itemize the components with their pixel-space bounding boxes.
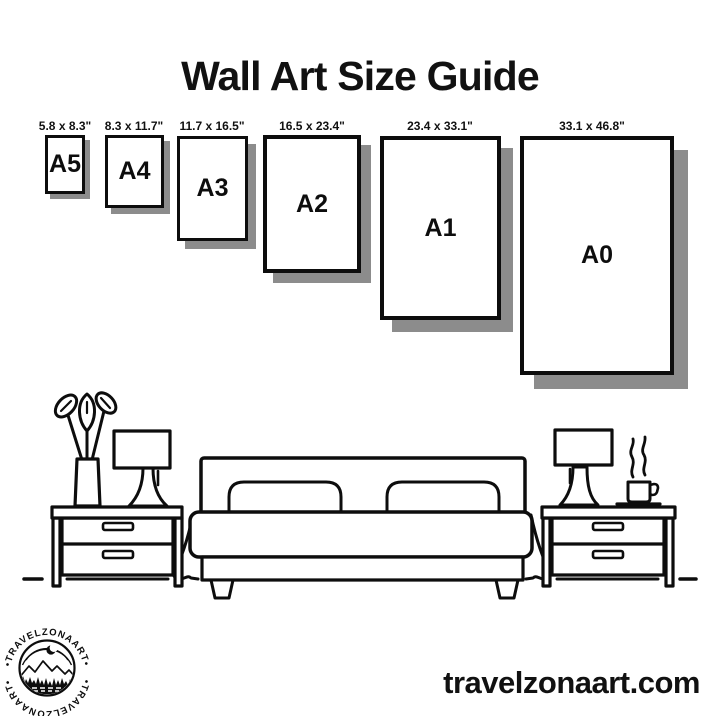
- bedroom-illustration-icon: [0, 360, 720, 605]
- lamp-shade: [114, 431, 170, 468]
- frame-a2: A2: [263, 135, 361, 273]
- frame-a0-letter: A0: [581, 241, 613, 270]
- brand-logo: •TRAVELZONAART• •TRAVELZONAART•: [2, 616, 94, 716]
- flower-vase-icon: [51, 389, 119, 506]
- steam: [631, 439, 634, 477]
- pillow-right: [387, 482, 499, 514]
- table-lamp-left-icon: [114, 431, 170, 506]
- frame-a5: A5: [45, 135, 85, 194]
- frame-a0: A0: [520, 136, 674, 375]
- lamp-shade: [555, 430, 612, 465]
- frame-a4-letter: A4: [119, 157, 151, 186]
- size-label-a4: 8.3 x 11.7": [105, 119, 163, 133]
- size-label-a2: 16.5 x 23.4": [279, 119, 345, 133]
- frame-a3-letter: A3: [197, 174, 229, 203]
- frame-a2-letter: A2: [296, 190, 328, 219]
- size-label-a3: 11.7 x 16.5": [179, 119, 244, 133]
- pillow-left: [229, 482, 341, 514]
- frame-a1: A1: [380, 136, 501, 320]
- coffee-cup-icon: [617, 437, 660, 504]
- page-title: Wall Art Size Guide: [0, 53, 720, 100]
- size-label-a1: 23.4 x 33.1": [407, 119, 473, 133]
- table-lamp-right-icon: [555, 430, 612, 505]
- frame-a3: A3: [177, 136, 248, 241]
- size-label-a5: 5.8 x 8.3": [39, 119, 91, 133]
- frame-a1-letter: A1: [425, 214, 457, 243]
- frame-a4: A4: [105, 135, 164, 208]
- nightstand-left-icon: [52, 507, 182, 586]
- size-label-a0: 33.1 x 46.8": [559, 119, 625, 133]
- wall-art-size-guide-poster: Wall Art Size Guide 5.8 x 8.3" 8.3 x 11.…: [0, 0, 720, 720]
- bed-icon: [173, 458, 550, 598]
- website-url: travelzonaart.com: [443, 665, 700, 701]
- bed-base: [202, 557, 523, 580]
- mattress: [190, 512, 532, 557]
- frame-a5-letter: A5: [49, 150, 81, 179]
- nightstand-right-icon: [542, 507, 675, 586]
- steam: [643, 437, 646, 475]
